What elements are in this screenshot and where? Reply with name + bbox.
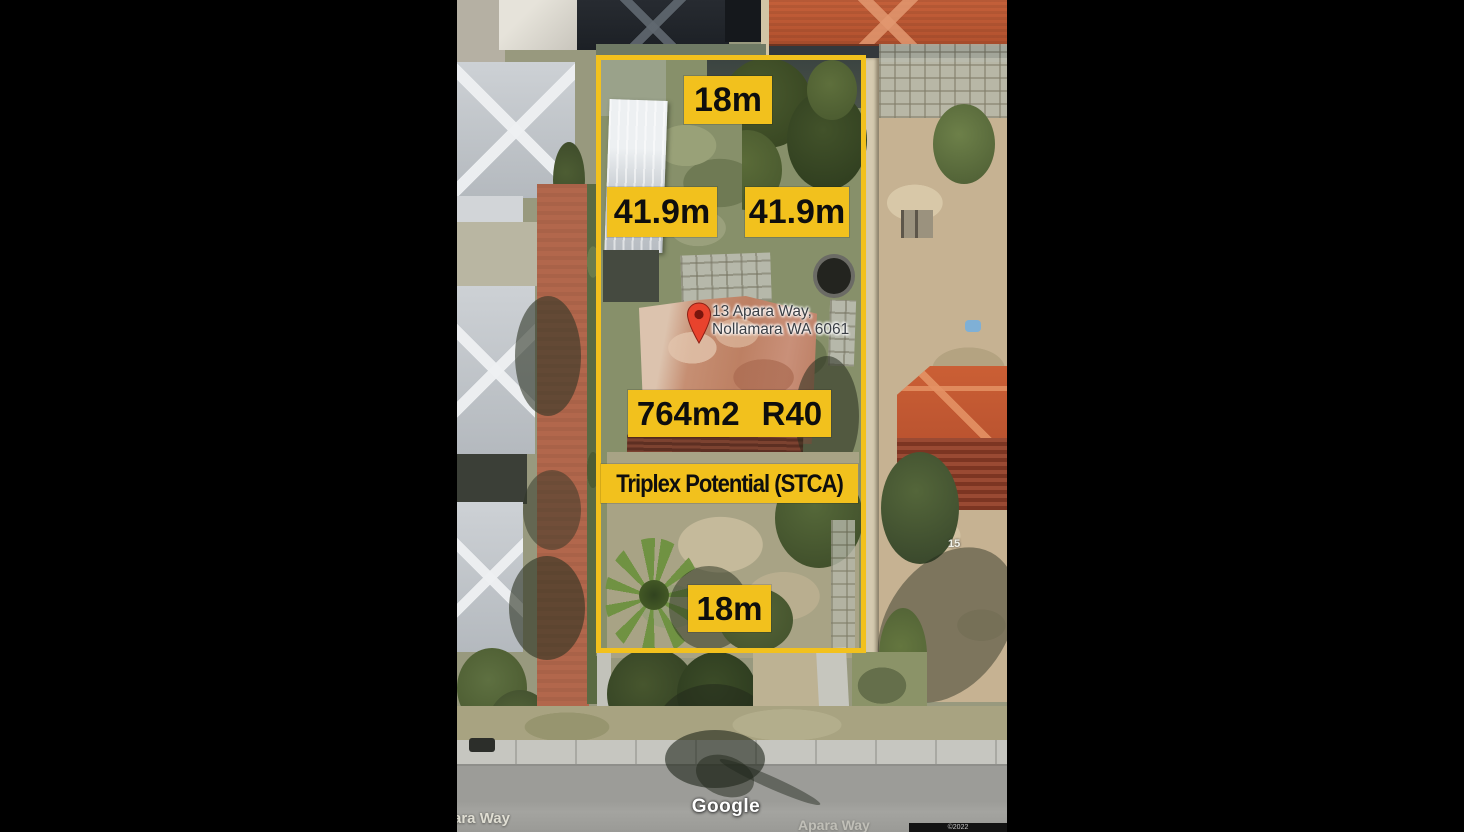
tree-shadow-driveway-2	[523, 470, 581, 550]
google-watermark: Google	[690, 796, 762, 818]
tree-east-1	[933, 104, 995, 184]
pin-address: 13 Apara Way, Nollamara WA 6061	[712, 303, 849, 339]
dimension-label-top: 18m	[684, 76, 772, 124]
blue-item-east	[965, 320, 981, 332]
area-zoning-label: 764m2 R40	[628, 390, 831, 437]
tree-shadow-driveway-3	[509, 556, 585, 660]
property-boundary	[596, 55, 866, 653]
potential-text: Triplex Potential (STCA)	[616, 469, 843, 499]
dimension-label-bottom: 18m	[688, 585, 771, 632]
carport-shadow-left	[457, 454, 527, 504]
paving-top-left	[457, 0, 505, 62]
gray-roof-house-1-annex	[457, 196, 523, 224]
car-on-verge	[469, 738, 495, 752]
area-value: 764m2	[637, 395, 740, 433]
posts-east	[901, 210, 933, 238]
fence-east	[866, 58, 879, 700]
street-label-left: ara Way	[457, 810, 510, 827]
terracotta-roof-top-right	[769, 0, 1007, 47]
letterboxed-listing-image: 18m 41.9m 41.9m 764m2 R40 Triplex Potent…	[0, 0, 1464, 832]
potential-label: Triplex Potential (STCA)	[601, 464, 858, 503]
pin-address-line1: 13 Apara Way,	[712, 303, 849, 321]
attribution-bar: ©2022	[909, 823, 1007, 832]
map-pin-icon	[686, 302, 712, 344]
white-building-top	[499, 0, 581, 50]
dark-roof-top	[577, 0, 729, 50]
brick-driveway	[537, 184, 589, 746]
paver-grid-east-top	[879, 44, 1007, 118]
satellite-photo[interactable]: 18m 41.9m 41.9m 764m2 R40 Triplex Potent…	[457, 0, 1007, 832]
pin-address-line2: Nollamara WA 6061	[712, 321, 849, 339]
ground-left-1	[457, 222, 537, 286]
dimension-label-left: 41.9m	[607, 187, 717, 237]
neighbor-house-number: 15	[948, 538, 960, 550]
street-label-right: Apara Way	[798, 817, 870, 832]
dimension-label-right: 41.9m	[745, 187, 849, 237]
tree-shadow-driveway-1	[515, 296, 581, 416]
zoning-value: R40	[762, 395, 823, 433]
dark-roof-top-2	[725, 0, 765, 42]
